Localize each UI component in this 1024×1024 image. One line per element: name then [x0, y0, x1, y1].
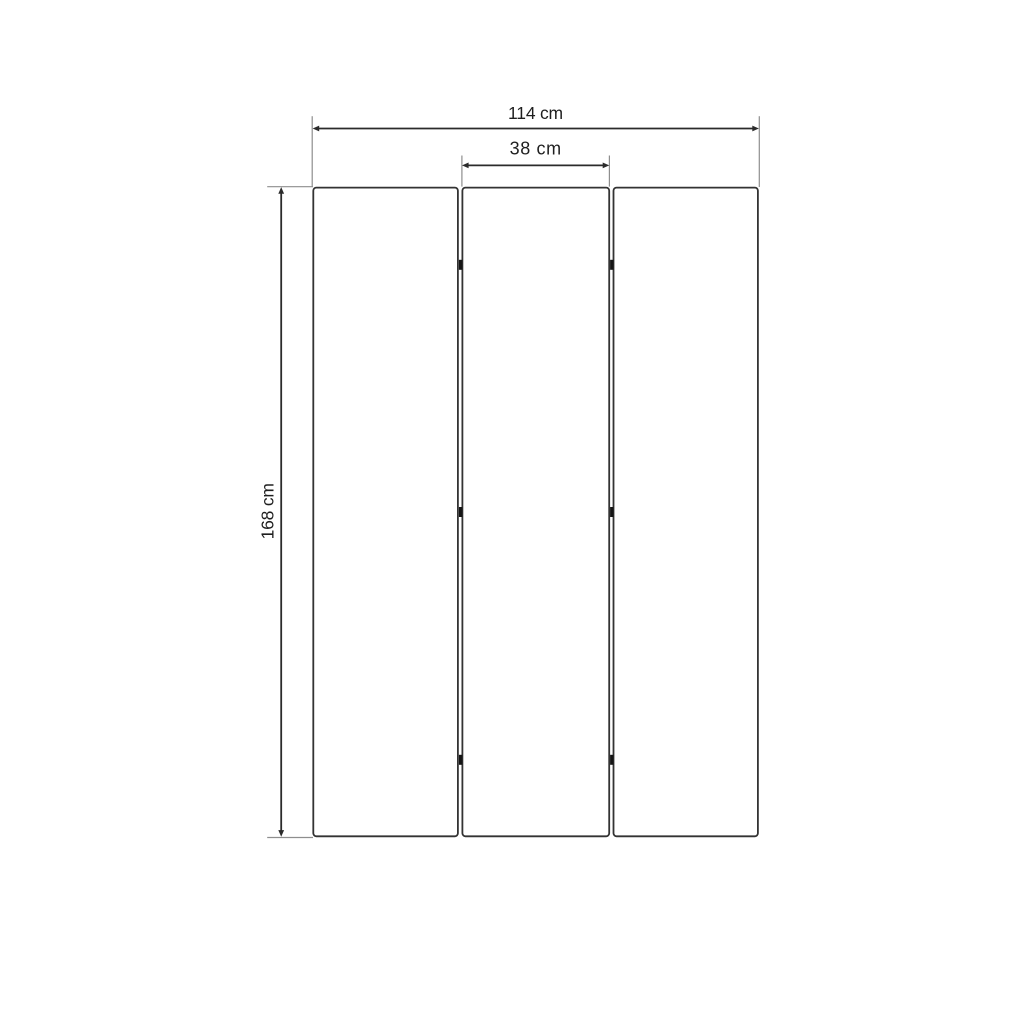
svg-text:168 cm: 168 cm: [258, 483, 278, 539]
svg-text:114 cm: 114 cm: [508, 103, 563, 123]
svg-text:38 cm: 38 cm: [510, 139, 562, 159]
